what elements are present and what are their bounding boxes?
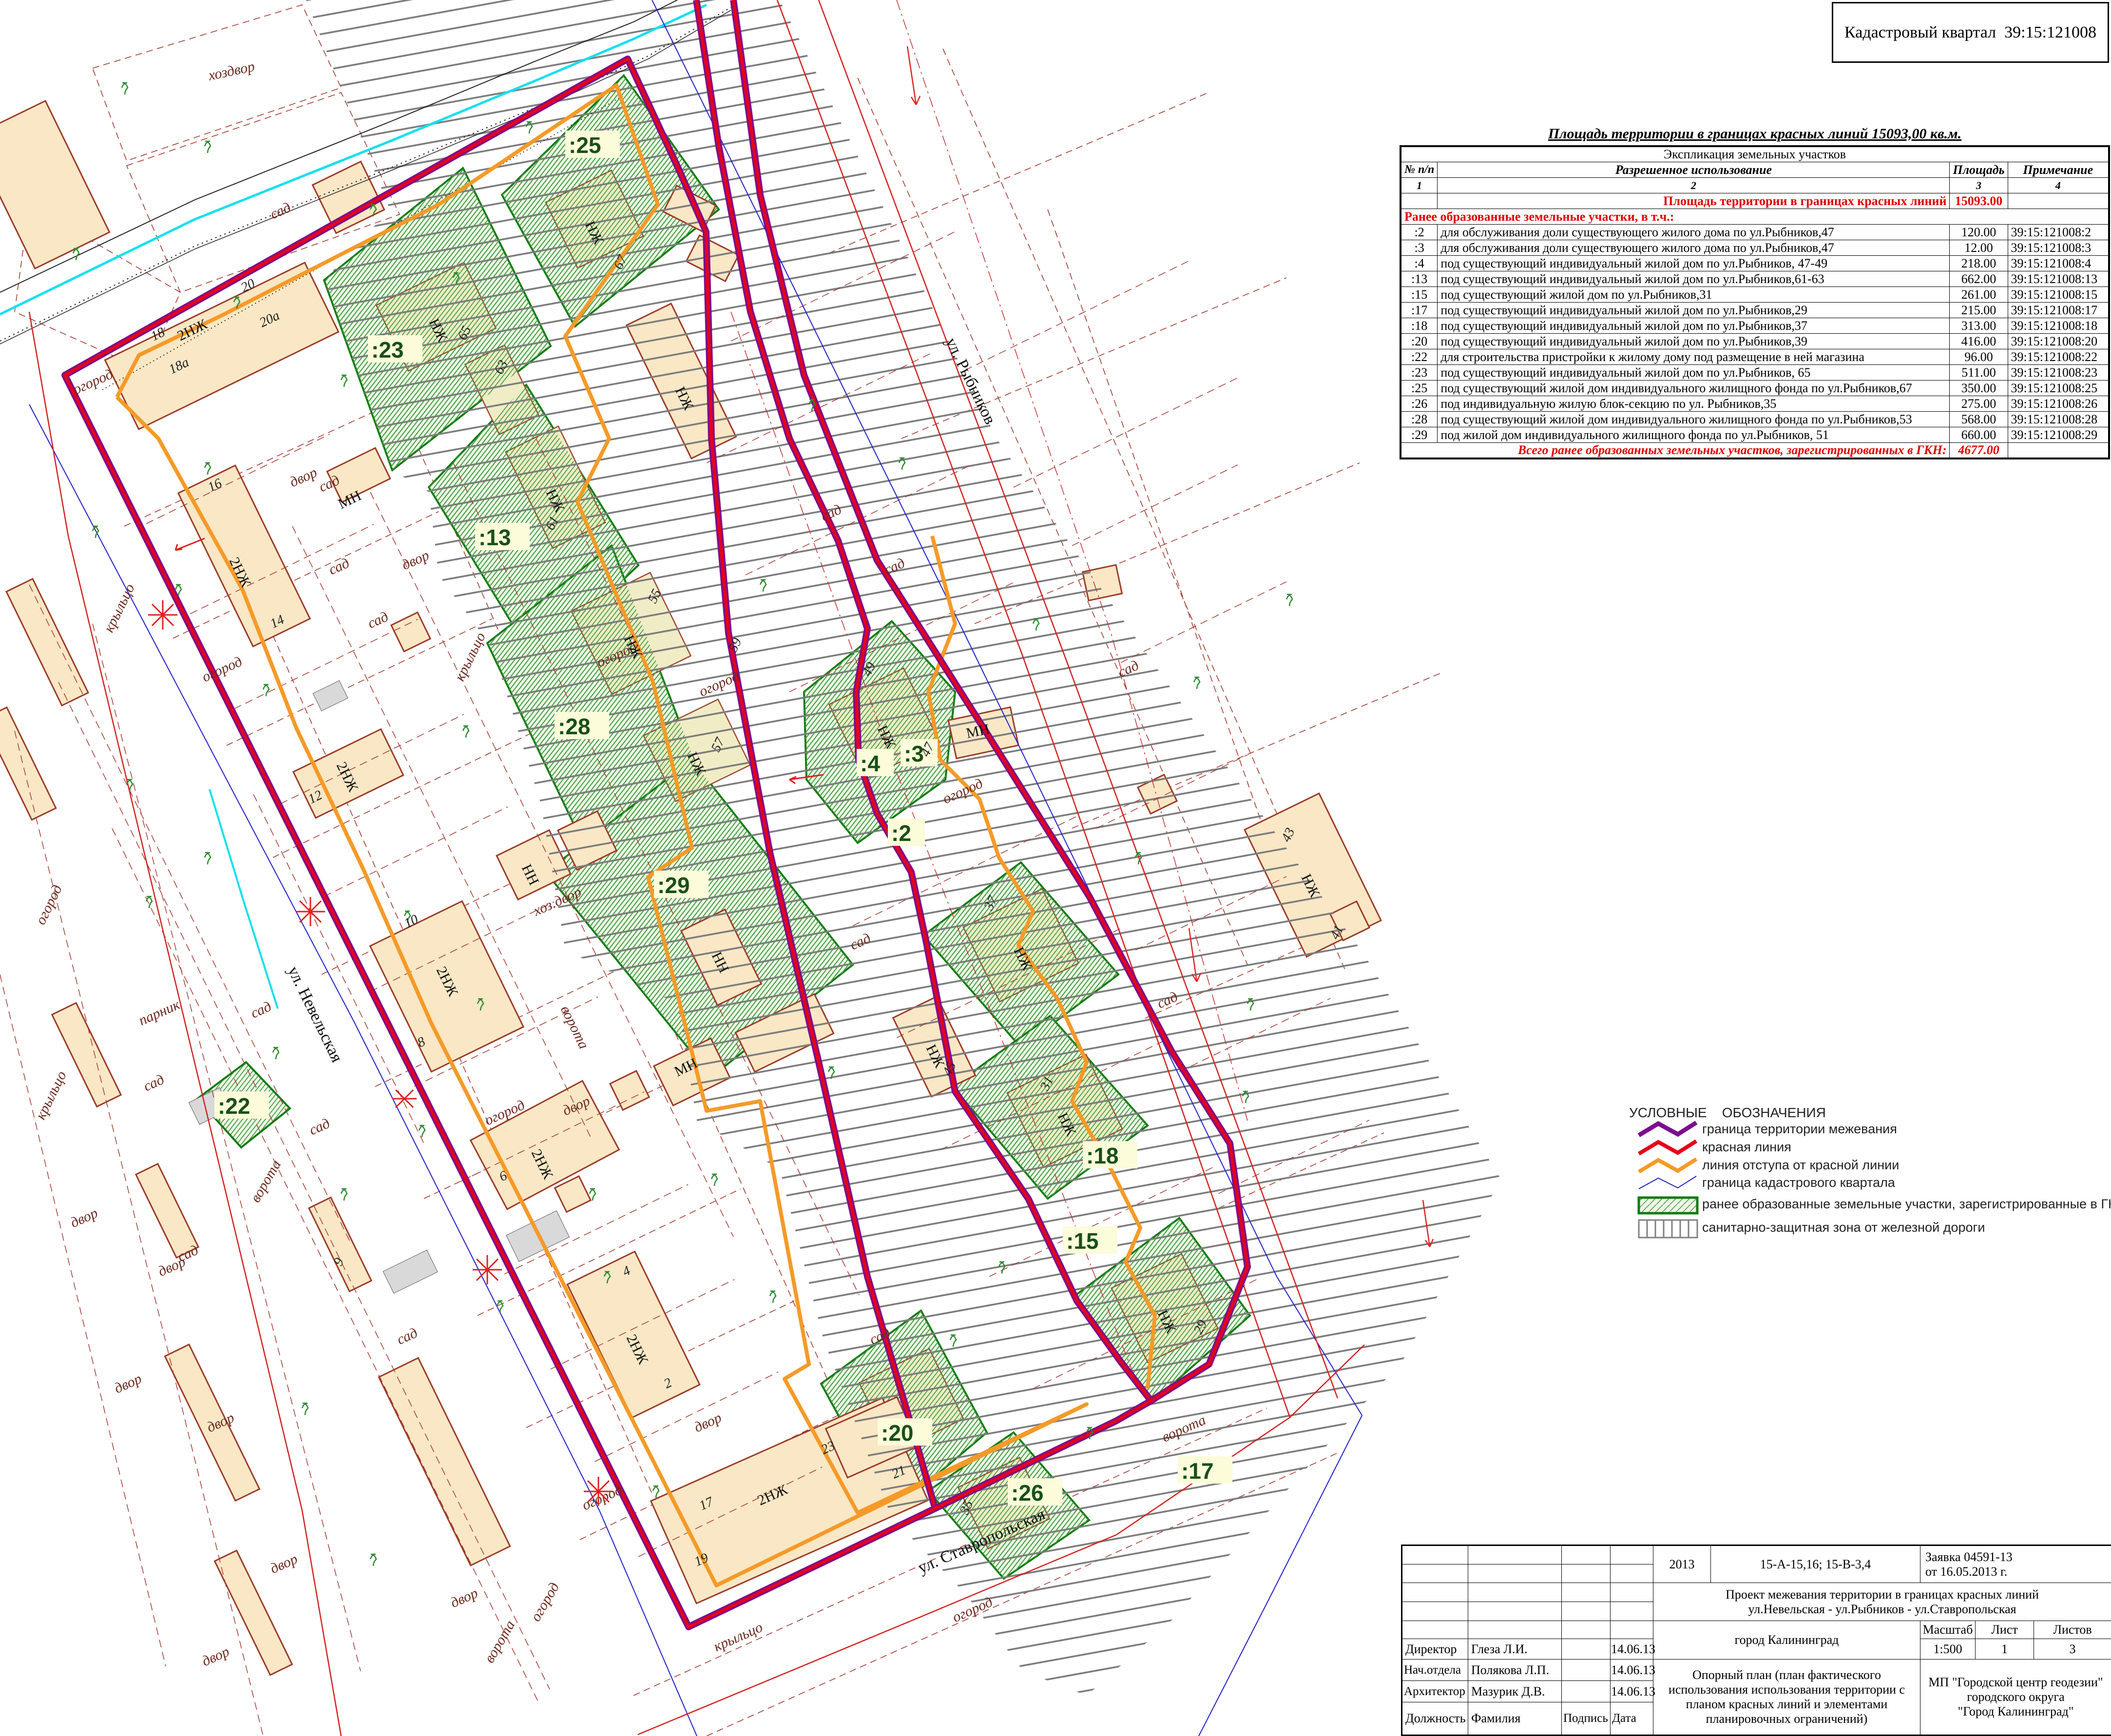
- svg-text:ворота: ворота: [557, 1003, 592, 1052]
- svg-text:двор: двор: [691, 1410, 724, 1436]
- svg-text:огород: огород: [527, 1580, 562, 1624]
- svg-text:ул. Невельская: ул. Невельская: [284, 963, 346, 1065]
- svg-text::13: :13: [479, 525, 511, 550]
- svg-text:сад: сад: [248, 998, 273, 1022]
- svg-text::4: :4: [860, 751, 880, 776]
- svg-text:двор: двор: [199, 1643, 231, 1670]
- svg-text:двор: двор: [68, 1205, 100, 1231]
- svg-text:огород: огород: [579, 1482, 624, 1513]
- svg-text:сад: сад: [268, 199, 293, 223]
- svg-text::25: :25: [569, 133, 601, 158]
- svg-text:крыльцо: крыльцо: [33, 1068, 70, 1122]
- svg-text::17: :17: [1181, 1458, 1213, 1484]
- svg-text:санитарно-защитная зона от жел: санитарно-защитная зона от железной доро…: [1702, 1220, 1985, 1235]
- svg-text:граница кадастрового квартала: граница кадастрового квартала: [1702, 1175, 1896, 1190]
- svg-text:ворота: ворота: [247, 1157, 284, 1205]
- svg-text:граница территории межевания: граница территории межевания: [1702, 1122, 1897, 1136]
- svg-text:сад: сад: [365, 609, 390, 632]
- svg-text:двор: двор: [268, 1551, 300, 1577]
- svg-text:крыльцо: крыльцо: [452, 630, 489, 684]
- svg-text:сад: сад: [394, 1325, 420, 1348]
- svg-text::29: :29: [657, 873, 690, 898]
- svg-text:двор: двор: [399, 547, 431, 573]
- svg-text:крыльцо: крыльцо: [101, 581, 138, 635]
- svg-text::15: :15: [1066, 1228, 1098, 1254]
- svg-text:ворота: ворота: [481, 1618, 518, 1665]
- svg-text:двор: двор: [155, 1254, 188, 1280]
- svg-text:двор: двор: [448, 1585, 480, 1611]
- svg-text::18: :18: [1086, 1143, 1118, 1168]
- svg-text:двор: двор: [112, 1371, 144, 1397]
- svg-text:линия отступа от красной линии: линия отступа от красной линии: [1702, 1158, 1899, 1172]
- svg-text::26: :26: [1011, 1480, 1043, 1506]
- svg-text:хоздвор: хоздвор: [207, 58, 256, 84]
- svg-text:огород: огород: [33, 882, 66, 927]
- svg-text:сад: сад: [307, 1115, 332, 1139]
- svg-text::20: :20: [881, 1420, 913, 1446]
- svg-text::28: :28: [558, 714, 590, 739]
- svg-text:ранее образованные земельные у: ранее образованные земельные участки, за…: [1702, 1197, 2111, 1211]
- svg-text:парник: парник: [136, 996, 183, 1029]
- svg-text:сад: сад: [141, 1071, 166, 1095]
- svg-text::22: :22: [218, 1093, 250, 1119]
- svg-text:крыльцо: крыльцо: [711, 1619, 765, 1655]
- svg-text::23: :23: [371, 337, 403, 362]
- svg-text::2: :2: [891, 820, 911, 846]
- svg-text:двор: двор: [287, 464, 319, 491]
- svg-text:красная линия: красная линия: [1702, 1140, 1791, 1154]
- svg-text:сад: сад: [326, 555, 351, 578]
